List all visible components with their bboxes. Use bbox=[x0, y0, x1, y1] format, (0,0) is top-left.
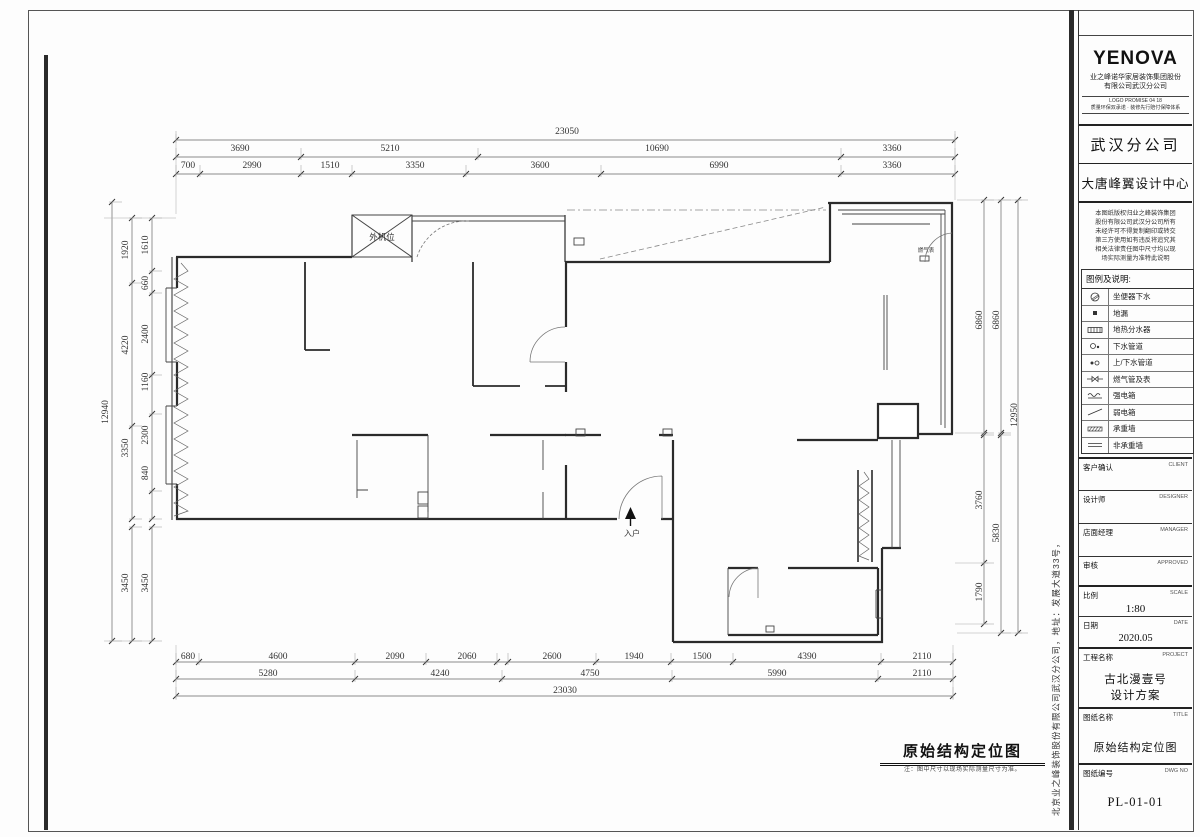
date-value: 2020.05 bbox=[1083, 633, 1188, 644]
drawing-title-value: 原始结构定位图 bbox=[1083, 739, 1188, 755]
company-name-line2: 有限公司武汉分公司 bbox=[1079, 82, 1192, 91]
svg-text:5280: 5280 bbox=[259, 669, 278, 679]
svg-text:680: 680 bbox=[181, 652, 196, 662]
legend-row: 燃气管及表 bbox=[1082, 372, 1193, 389]
svg-text:2110: 2110 bbox=[913, 652, 932, 662]
title-block: YENOVA 业之峰诺华家居装饰集团股份 有限公司武汉分公司 LOGO PROM… bbox=[1078, 10, 1192, 830]
svg-text:5210: 5210 bbox=[381, 144, 400, 154]
toilet-drain-icon bbox=[1082, 289, 1109, 305]
field-title: 图纸名称TITLE 原始结构定位图 bbox=[1079, 707, 1192, 763]
legend-row: 下水管道 bbox=[1082, 339, 1193, 356]
legend-row: 强电箱 bbox=[1082, 388, 1193, 405]
legend-box: 图例及说明: 坐便器下水 地漏 地热分水器 下水管道 上/下水管道 bbox=[1081, 269, 1194, 454]
supply-drain-pipe-icon bbox=[1082, 355, 1109, 371]
svg-text:4600: 4600 bbox=[269, 652, 288, 662]
strong-current-box-icon bbox=[1082, 388, 1109, 404]
yenova-logo: YENOVA bbox=[1079, 48, 1192, 70]
svg-text:1510: 1510 bbox=[321, 161, 340, 171]
svg-text:3350: 3350 bbox=[406, 161, 425, 171]
floorplan-drawing: 2305036905210106903360700299015103350360… bbox=[0, 0, 1070, 837]
svg-text:2400: 2400 bbox=[141, 324, 151, 343]
legend-row: 坐便器下水 bbox=[1082, 289, 1193, 306]
svg-text:10690: 10690 bbox=[645, 144, 669, 154]
legend-row: 地热分水器 bbox=[1082, 322, 1193, 339]
scale-value: 1:80 bbox=[1083, 603, 1188, 615]
dwg-no-value: PL-01-01 bbox=[1083, 795, 1188, 810]
walls-thick bbox=[172, 202, 953, 643]
svg-text:4750: 4750 bbox=[581, 669, 600, 679]
svg-text:5990: 5990 bbox=[768, 669, 787, 679]
company-name-line1: 业之峰诺华家居装饰集团股份 bbox=[1079, 73, 1192, 82]
tagline-line1: LOGO PROMISE 04 18 bbox=[1082, 98, 1189, 105]
plan-caption-title: 原始结构定位图 bbox=[880, 740, 1045, 766]
svg-text:6990: 6990 bbox=[710, 161, 729, 171]
field-approved: 审核APPROVED bbox=[1079, 556, 1192, 585]
project-name-line2: 设计方案 bbox=[1083, 687, 1188, 703]
entry-arrow-icon bbox=[625, 507, 636, 526]
design-center-name: 大唐峰翼设计中心 bbox=[1079, 164, 1192, 203]
legend-row: 承重墙 bbox=[1082, 421, 1193, 438]
field-client: 客户确认CLIENT bbox=[1079, 457, 1192, 490]
non-load-bearing-wall-icon bbox=[1082, 438, 1109, 454]
svg-text:23050: 23050 bbox=[555, 127, 579, 137]
svg-text:3360: 3360 bbox=[883, 161, 902, 171]
legend-row: 地漏 bbox=[1082, 306, 1193, 323]
heating-manifold-icon bbox=[1082, 322, 1109, 338]
svg-text:700: 700 bbox=[181, 161, 196, 171]
svg-text:4390: 4390 bbox=[798, 652, 817, 662]
floor-drain-icon bbox=[1082, 306, 1109, 322]
svg-text:3450: 3450 bbox=[121, 573, 131, 592]
svg-text:12950: 12950 bbox=[1010, 403, 1020, 427]
svg-text:3450: 3450 bbox=[141, 573, 151, 592]
svg-text:3350: 3350 bbox=[121, 438, 131, 457]
svg-text:840: 840 bbox=[141, 466, 151, 481]
windows-and-details bbox=[166, 210, 945, 635]
svg-text:4220: 4220 bbox=[121, 335, 131, 354]
dashed-lines bbox=[567, 207, 826, 259]
svg-text:2110: 2110 bbox=[913, 669, 932, 679]
field-scale: 比例SCALE 1:80 bbox=[1079, 585, 1192, 616]
svg-text:4240: 4240 bbox=[431, 669, 450, 679]
titleblock-top-strip bbox=[1079, 10, 1192, 36]
field-project: 工程名称PROJECT 古北漫壹号 设计方案 bbox=[1079, 647, 1192, 707]
tagline-line2: 质量环保双承诺 · 装修先行赔付保障体系 bbox=[1082, 105, 1189, 112]
svg-text:3600: 3600 bbox=[531, 161, 550, 171]
load-bearing-wall-icon bbox=[1082, 421, 1109, 437]
legend-row: 非承重墙 bbox=[1082, 438, 1193, 454]
svg-text:2990: 2990 bbox=[243, 161, 262, 171]
field-manager: 店面经理MANAGER bbox=[1079, 523, 1192, 556]
svg-text:入户: 入户 bbox=[624, 528, 640, 538]
weak-current-box-icon bbox=[1082, 405, 1109, 421]
project-name-line1: 古北漫壹号 bbox=[1083, 671, 1188, 687]
plan-text-labels: 外机位入户燃气表 bbox=[369, 232, 935, 538]
svg-text:1610: 1610 bbox=[141, 235, 151, 254]
drain-pipe-icon bbox=[1082, 339, 1109, 355]
svg-text:1160: 1160 bbox=[141, 372, 151, 391]
svg-text:燃气表: 燃气表 bbox=[918, 246, 935, 254]
branch-name: 武汉分公司 bbox=[1079, 124, 1192, 164]
drawing-sheet: 2305036905210106903360700299015103350360… bbox=[0, 0, 1200, 837]
svg-text:23030: 23030 bbox=[553, 686, 577, 696]
svg-text:6860: 6860 bbox=[975, 310, 985, 329]
svg-text:2060: 2060 bbox=[458, 652, 477, 662]
svg-text:6860: 6860 bbox=[992, 310, 1002, 329]
plan-caption-note: 注：图中尺寸以现场实际测量尺寸为准。 bbox=[880, 764, 1045, 773]
svg-text:3690: 3690 bbox=[231, 144, 250, 154]
gas-meter-icon bbox=[1082, 372, 1109, 388]
wall-hatching bbox=[174, 263, 869, 560]
svg-text:1500: 1500 bbox=[693, 652, 712, 662]
field-date: 日期DATE 2020.05 bbox=[1079, 616, 1192, 647]
legend-title: 图例及说明: bbox=[1082, 270, 1193, 289]
svg-text:外机位: 外机位 bbox=[369, 232, 395, 242]
svg-text:1920: 1920 bbox=[121, 240, 131, 259]
svg-text:5830: 5830 bbox=[992, 523, 1002, 542]
legend-row: 弱电箱 bbox=[1082, 405, 1193, 422]
copyright-notice: 本图纸版权归业之峰装饰集团 股份有限公司武汉分公司所有 未经许可不得复制翻印或转… bbox=[1079, 203, 1192, 269]
legend-row: 上/下水管道 bbox=[1082, 355, 1193, 372]
svg-text:3760: 3760 bbox=[975, 490, 985, 509]
svg-text:2090: 2090 bbox=[386, 652, 405, 662]
company-side-text: 北京业之峰装饰股份有限公司武汉分公司，地址：发展大道33号， bbox=[1050, 424, 1062, 816]
svg-text:660: 660 bbox=[141, 276, 151, 291]
svg-text:2600: 2600 bbox=[543, 652, 562, 662]
svg-text:3360: 3360 bbox=[883, 144, 902, 154]
svg-text:1940: 1940 bbox=[625, 652, 644, 662]
svg-text:12940: 12940 bbox=[101, 400, 111, 424]
field-designer: 设计师DESIGNER bbox=[1079, 490, 1192, 523]
svg-text:2300: 2300 bbox=[141, 425, 151, 444]
svg-text:1790: 1790 bbox=[975, 582, 985, 601]
field-dwg-no: 图纸编号DWG NO PL-01-01 bbox=[1079, 763, 1192, 819]
